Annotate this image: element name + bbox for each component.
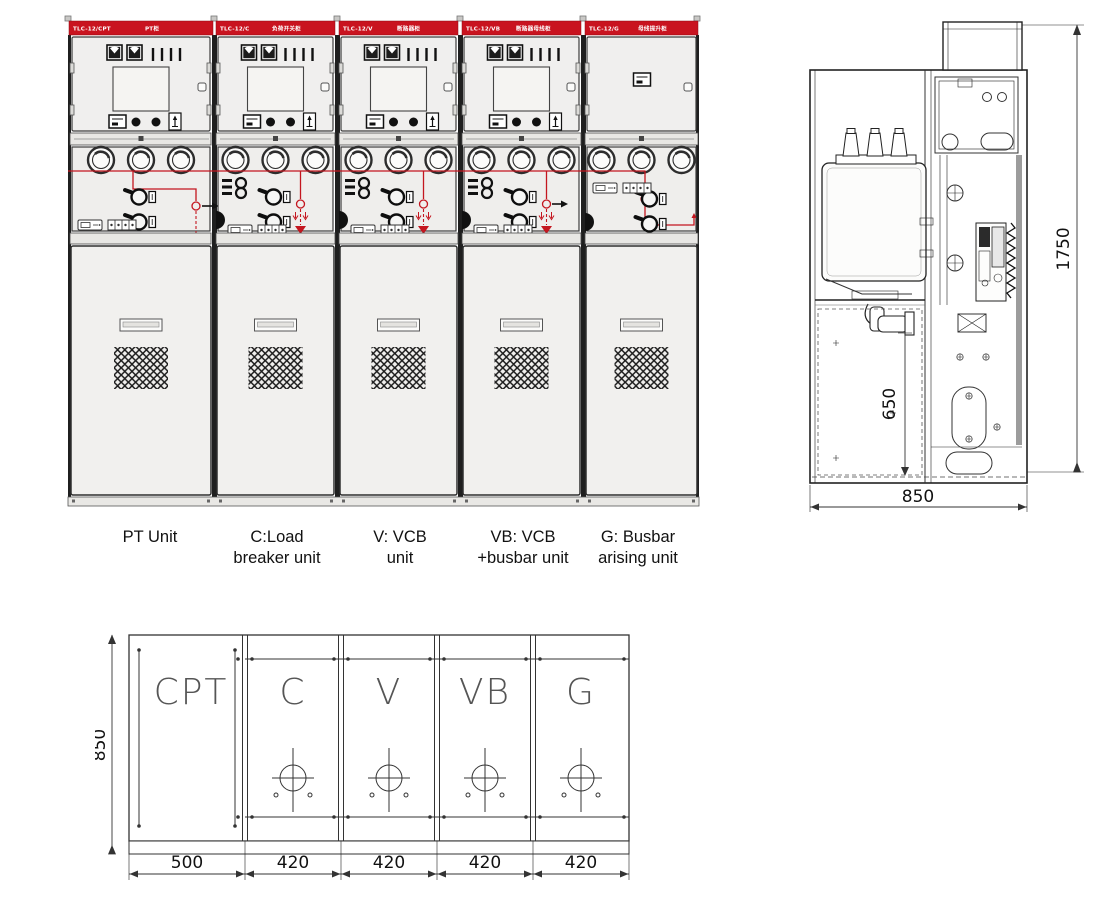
display-window	[371, 67, 427, 111]
position-indicator	[169, 113, 181, 130]
panel-g: TLC-12/G 母线提升柜	[583, 21, 698, 495]
panel-name-cn: 负荷开关柜	[272, 25, 301, 33]
terminal-block	[108, 220, 136, 230]
unit-label-line1: V: VCB	[332, 527, 468, 548]
panel-model: TLC-12/G	[589, 27, 619, 33]
plan-label-vb: VB	[459, 672, 511, 713]
panel-c: TLC-12/C 负荷开关柜	[214, 21, 337, 495]
ventilation-grille	[495, 347, 549, 389]
width-dim-vb: 420	[469, 853, 501, 873]
ventilation-grille	[114, 347, 168, 389]
dim-height-text: 1750	[1054, 227, 1074, 270]
unit-label-line1: G: Busbar	[570, 527, 706, 548]
nameplate	[78, 220, 102, 230]
dim-850-plan: 850	[95, 635, 116, 855]
panel-cpt: TLC-12/CPT PT柜	[68, 21, 219, 495]
panel-v: TLC-12/V 断路器柜	[337, 21, 460, 495]
door-button	[321, 83, 329, 91]
panel-name-cn: PT柜	[145, 25, 159, 33]
counter-device	[634, 73, 651, 86]
plan-outline	[129, 635, 629, 854]
lifting-lugs	[65, 16, 700, 21]
dim-inner-text: 650	[880, 388, 900, 420]
side-view: 1750 650 850	[790, 15, 1110, 520]
plan-label-v: V	[376, 672, 403, 713]
plan-label-cpt: CPT	[154, 672, 229, 713]
unit-label-v: V: VCB unit	[332, 527, 468, 569]
dim-depth-text: 850	[902, 487, 934, 507]
front-view: TLC-12/CPT PT柜	[60, 15, 710, 525]
door-button	[684, 83, 692, 91]
pushbutton	[152, 118, 161, 127]
ventilation-grille	[372, 347, 426, 389]
width-dim-g: 420	[565, 853, 597, 873]
cabinet-base	[68, 497, 699, 506]
door-button	[567, 83, 575, 91]
unit-label-c: C:Load breaker unit	[209, 527, 345, 569]
display-window	[248, 67, 304, 111]
panel-name-cn: 断路器母线柜	[516, 25, 551, 33]
panel-name-cn: 母线提升柜	[638, 25, 667, 33]
width-dim-cpt: 500	[171, 853, 203, 873]
unit-label-line2: breaker unit	[209, 548, 345, 569]
panel-name-cn: 断路器柜	[397, 25, 420, 33]
switchgear-drawing-page: { "front_view": { "panels": [ {"model": …	[0, 0, 1120, 915]
width-dim-c: 420	[277, 853, 309, 873]
ventilation-grille	[615, 347, 669, 389]
unit-label-line2: arising unit	[570, 548, 706, 569]
plan-height-dim-text: 850	[95, 729, 110, 761]
panel-model: TLC-12/CPT	[73, 27, 111, 33]
unit-label-line1: PT Unit	[82, 527, 218, 548]
dim-1750: 1750	[1022, 25, 1084, 473]
meter-icon	[107, 45, 122, 60]
width-dim-v: 420	[373, 853, 405, 873]
panel-vb: TLC-12/VB 断路器母线柜	[460, 21, 583, 495]
panel-model: TLC-12/V	[343, 27, 373, 33]
unit-label-pt: PT Unit	[82, 527, 218, 548]
door-button	[198, 83, 206, 91]
display-window	[113, 67, 169, 111]
display-window	[494, 67, 550, 111]
dim-850-side: 850	[810, 485, 1027, 512]
unit-label-line1: C:Load	[209, 527, 345, 548]
plan-view: CPT C V VB G 850 500 420 420	[95, 618, 690, 913]
pushbutton	[132, 118, 141, 127]
counter-device	[109, 115, 126, 128]
ventilation-grille	[249, 347, 303, 389]
plan-label-g: G	[566, 672, 596, 713]
door-button	[444, 83, 452, 91]
plan-label-c: C	[279, 672, 306, 713]
unit-label-g: G: Busbar arising unit	[570, 527, 706, 569]
meter-icon	[127, 45, 142, 60]
panel-model: TLC-12/C	[220, 27, 249, 33]
unit-label-line2: unit	[332, 548, 468, 569]
panel-model: TLC-12/VB	[466, 27, 500, 33]
bushings	[843, 129, 907, 157]
